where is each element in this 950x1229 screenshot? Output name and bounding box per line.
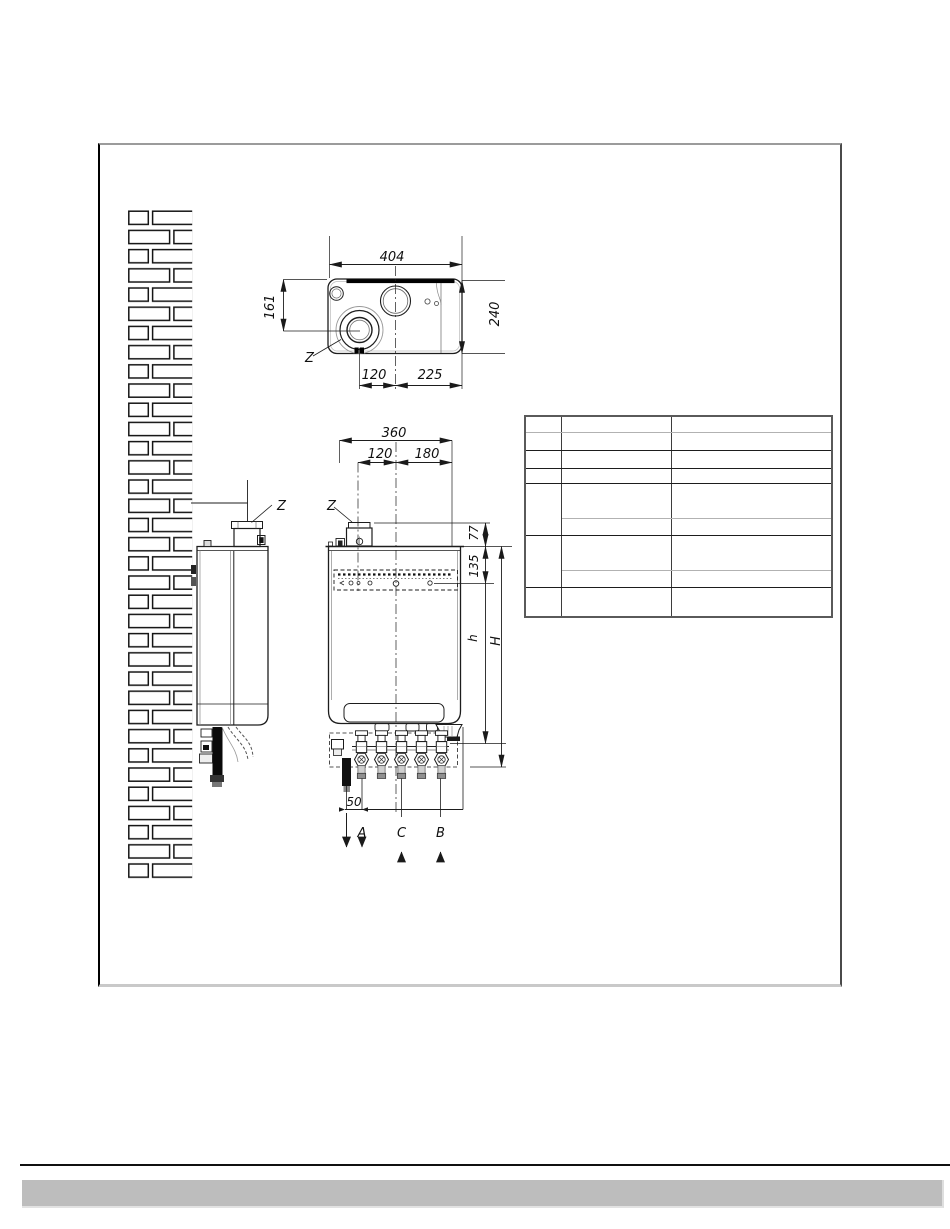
table-row — [525, 570, 832, 587]
top-dim-240: 240 — [488, 302, 503, 327]
side-view — [191, 480, 272, 787]
table-row — [525, 416, 832, 432]
table-cell — [561, 587, 671, 617]
brick-wall — [128, 209, 192, 882]
table-row — [525, 587, 832, 617]
connection-b-label: B — [436, 826, 445, 841]
connection-valves — [330, 724, 463, 793]
table-row — [525, 535, 832, 570]
front-flue-collar — [347, 523, 373, 547]
table-cell — [525, 468, 561, 483]
side-pipes — [200, 727, 254, 787]
table-row — [525, 432, 832, 450]
table-cell — [671, 468, 832, 483]
front-dim-135: 135 — [467, 555, 481, 578]
footer-rule — [20, 1164, 950, 1166]
table-cell — [561, 570, 671, 587]
table-cell — [561, 518, 671, 535]
table-cell — [561, 483, 671, 518]
table-cell — [525, 587, 561, 617]
table-cell — [671, 518, 832, 535]
table-cell — [671, 483, 832, 518]
footer-bar — [22, 1180, 944, 1208]
top-dim-161: 161 — [263, 295, 278, 320]
table-cell — [561, 450, 671, 468]
top-dim-225: 225 — [418, 368, 443, 383]
front-flue-z-label: Z — [326, 499, 337, 514]
manual-page: { "colors": { "line": "#1a1a1a", "footer… — [0, 0, 950, 1229]
front-dim-360: 360 — [382, 426, 407, 441]
table-cell — [671, 570, 832, 587]
front-dim-180: 180 — [415, 447, 440, 462]
table-cell — [561, 416, 671, 432]
connection-c-label: C — [397, 826, 407, 841]
side-flue-collar — [232, 522, 266, 547]
table-cell — [671, 450, 832, 468]
table-cell — [525, 483, 561, 535]
table-cell — [671, 535, 832, 570]
table-cell — [561, 535, 671, 570]
table-row — [525, 468, 832, 483]
top-dim-120: 120 — [362, 368, 387, 383]
table-cell — [561, 468, 671, 483]
table-cell — [525, 535, 561, 587]
table-cell — [671, 432, 832, 450]
side-flue-z-label: Z — [276, 499, 287, 514]
table-cell — [525, 416, 561, 432]
top-flue-z-label: Z — [304, 351, 315, 366]
table-cell — [671, 416, 832, 432]
table-cell — [525, 432, 561, 450]
front-dim-50: 50 — [346, 795, 362, 809]
table-row — [525, 450, 832, 468]
table-cell — [561, 432, 671, 450]
bottom-panel — [344, 704, 444, 723]
front-dim-H: H — [489, 636, 504, 646]
front-dim-77: 77 — [467, 525, 481, 541]
top-flue-circle — [336, 307, 383, 354]
top-dim-404: 404 — [380, 250, 405, 265]
table-cell — [525, 450, 561, 468]
table-row — [525, 518, 832, 535]
table-cell — [671, 587, 832, 617]
table-row — [525, 483, 832, 518]
front-dim-h: h — [466, 634, 480, 642]
spec-table — [524, 415, 833, 618]
connection-a-label: A — [357, 826, 367, 841]
front-dim-120: 120 — [368, 447, 393, 462]
